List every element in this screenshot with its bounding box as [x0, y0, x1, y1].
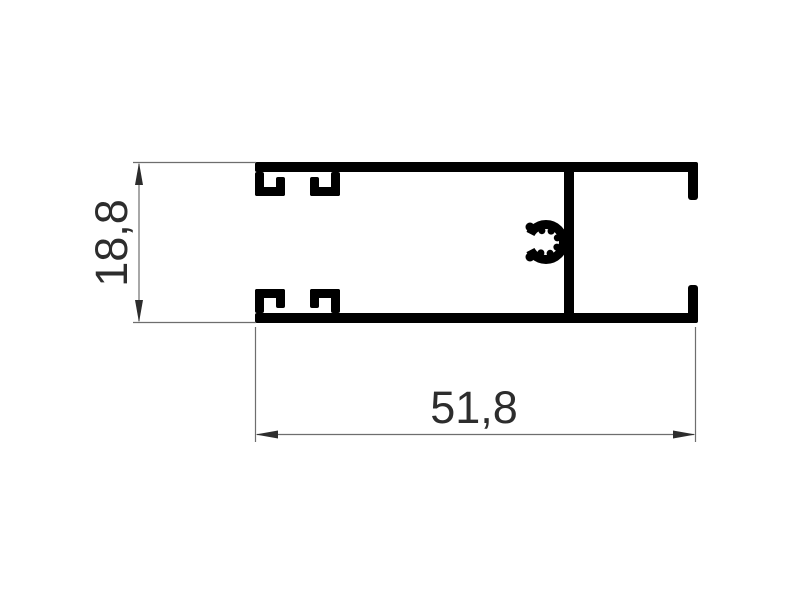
profile-outline: [255, 162, 698, 323]
hook-lip: [310, 289, 319, 308]
glazing-hook-bottom-left: [255, 289, 285, 313]
scallop: [548, 228, 555, 235]
screw-boss: [517, 223, 564, 262]
screw-boss-tip-top: [526, 223, 535, 232]
hook-lip: [276, 177, 285, 196]
arrow-right-icon: [673, 431, 696, 439]
width-dimension-label: 51,8: [430, 382, 518, 433]
right-top-leg: [688, 162, 698, 200]
dimension-height: [133, 163, 256, 323]
arrow-up-icon: [135, 163, 143, 186]
top-wall: [255, 162, 698, 172]
scallop: [553, 244, 560, 251]
scallop: [547, 250, 554, 257]
drawing-canvas: 18,8 51,8: [0, 0, 800, 600]
profile-cross-section-drawing: 18,8 51,8: [0, 0, 800, 600]
hook-lip: [310, 177, 319, 196]
arrow-left-icon: [256, 431, 279, 439]
scallop: [554, 234, 561, 241]
bottom-wall: [255, 313, 698, 323]
scallop: [538, 227, 545, 234]
screw-boss-tip-bottom: [526, 253, 535, 262]
right-bottom-leg: [688, 285, 698, 323]
screw-boss-bore: [539, 235, 554, 250]
glazing-hook-bottom-right: [310, 289, 340, 313]
glazing-hook-top-right: [310, 172, 340, 196]
arrow-down-icon: [135, 300, 143, 323]
height-dimension-label: 18,8: [86, 199, 137, 287]
hook-lip: [276, 289, 285, 308]
glazing-hook-top-left: [255, 172, 285, 196]
scallop: [537, 249, 544, 256]
